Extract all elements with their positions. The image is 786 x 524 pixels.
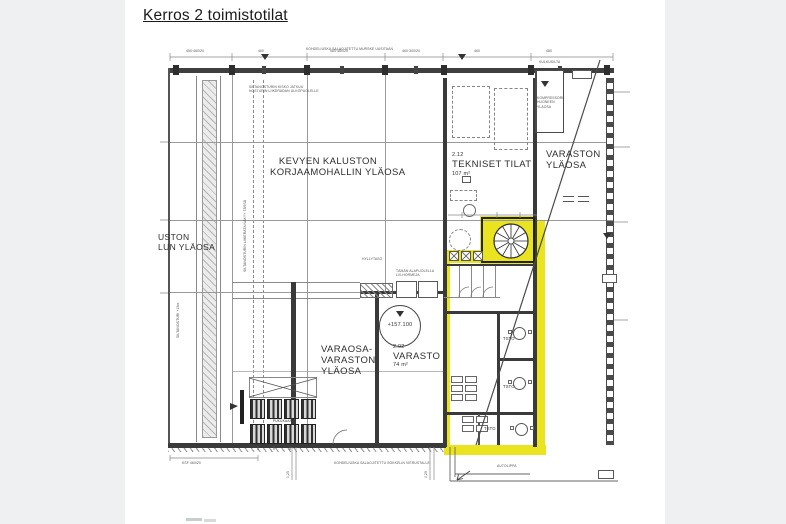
room-label-left-partial-line2: LUN YLÄOSA: [158, 242, 215, 252]
stall-divider-3: [483, 266, 484, 297]
room-label-tsto-2: TSTO: [503, 385, 515, 390]
locker-stall: [267, 424, 282, 444]
shaft-box-a: [396, 281, 417, 298]
crane-rail-line-b: [220, 76, 221, 442]
locker-stall: [267, 399, 282, 419]
locker-cell: [449, 251, 459, 261]
shelf-dash: [578, 201, 589, 202]
locker-stall: [250, 424, 265, 444]
chair: [510, 426, 514, 430]
desk: [451, 385, 463, 392]
room-label-hall: KEVYEN KALUSTON KORJAAMOHALLIN YLÄOSA: [270, 156, 386, 178]
room-label-left-partial: USTON LUN YLÄOSA: [158, 232, 215, 252]
grid-line-h1: [168, 142, 606, 143]
walkway-note: TÄMÄN ALAPUOLELLA LVI-HORMEJA: [396, 269, 434, 278]
stall-front-line: [444, 297, 500, 298]
tilt-label-1: 0,25: [286, 460, 290, 478]
room-label-tsto-1: TSTO: [503, 337, 515, 342]
equipment-dashed-circle: [449, 229, 471, 251]
dim-top-4: 460·300/20: [402, 49, 420, 53]
right-top-note: KULKUSILTA: [539, 60, 560, 64]
column-marker: [528, 65, 534, 75]
dim-top-2: 460: [258, 49, 264, 53]
room-label-varasto-upper-line2: YLÄOSA: [546, 160, 601, 171]
room-label-varaosa-line2: VARASTON: [321, 355, 376, 366]
desk: [462, 425, 474, 432]
room-label-varasto-upper: VARASTON YLÄOSA: [546, 149, 601, 171]
room-label-hall-line1: KEVYEN KALUSTON: [270, 156, 386, 167]
wall-bottom-hatch: [168, 448, 446, 452]
chair: [528, 380, 532, 384]
shelf-note: HYLLYTASO: [362, 257, 382, 261]
chair: [530, 426, 534, 430]
grid-line-h2: [168, 220, 614, 221]
stall-divider-4: [495, 266, 496, 297]
column-marker: [229, 65, 235, 75]
stall-divider-1: [459, 266, 460, 297]
wall-left-outer: [168, 68, 170, 447]
stair-room-frame: [481, 217, 535, 263]
column-marker: [441, 65, 447, 75]
room-number-varasto: 2.02: [393, 344, 405, 350]
equipment-circle: [463, 204, 476, 217]
level-marker-text: +157.100: [379, 322, 421, 328]
column-marker: [604, 65, 610, 75]
desk: [462, 416, 474, 423]
round-table: [515, 423, 528, 436]
crane-path-note-vertical: SILTANOSTURIN LIIKERATA NÄKYY TÄSSÄ: [243, 162, 247, 272]
column-marker: [173, 65, 179, 75]
wall-office-h3: [446, 412, 537, 415]
wall-right-hatched: [606, 78, 614, 445]
crane-rail-line-a: [196, 76, 197, 442]
page-title: Kerros 2 toimistotilat: [143, 7, 288, 25]
column-marker: [414, 66, 418, 74]
locker-cell: [461, 251, 471, 261]
column-marker: [304, 65, 310, 75]
room-label-kompressori-line3: YLÄOSA: [537, 105, 565, 109]
room-label-tsto-3: TSTO: [484, 427, 496, 432]
locker-block-frame: [249, 377, 317, 398]
grid-line-v3: [385, 72, 386, 293]
column-marker: [382, 65, 388, 75]
dim-top-5: 460: [474, 49, 480, 53]
roof-unit-box: [572, 70, 592, 79]
room-label-varaosa-line3: YLÄOSA: [321, 366, 376, 377]
cutoff-drawing-fragment: [204, 519, 216, 522]
equipment-dashed-2: [494, 88, 528, 150]
wall-vertical-hall-east: [443, 78, 447, 447]
grid-line-v1: [232, 72, 233, 445]
corridor-line-bottom: [232, 298, 360, 299]
walkway-hatch: [360, 283, 393, 298]
room-label-varaosa-line1: VARAOSA-: [321, 344, 376, 355]
room-label-varasto: VARASTO: [393, 351, 440, 362]
room-label-left-partial-line1: USTON: [158, 232, 215, 242]
highlight-right-strip: [537, 220, 545, 455]
dim-left-bottom: KSF 460/20: [182, 461, 201, 465]
crane-rail-note: SILTANOSTURIN KISKO JATKUU NOSTURIN LIIK…: [249, 85, 319, 94]
crane-rail-note-line2: NOSTURIN LIIKERADAN ULKOPUOLELLE: [249, 89, 319, 93]
chair: [508, 380, 512, 384]
wall-office-h2: [497, 358, 537, 361]
crane-note-vertical: SILTANOSTURI +15m: [176, 238, 180, 338]
column-marker: [340, 66, 344, 74]
wall-fixture-box: [602, 274, 617, 283]
room-label-varaosa: VARAOSA- VARASTON YLÄOSA: [321, 344, 376, 378]
dim-top-3: 480·460/20: [330, 49, 348, 53]
desk: [451, 376, 463, 383]
shaft-box-b: [418, 281, 438, 298]
room-label-kompressori: KOMPRESSORI- HUONEEN YLÄOSA: [537, 96, 565, 109]
wall-office-h1: [446, 311, 537, 314]
chair: [528, 330, 532, 334]
room-label-varasto-upper-line1: VARASTON: [546, 149, 601, 160]
wall-office-north: [444, 264, 536, 266]
desk: [465, 385, 477, 392]
walkway-note-line2: LVI-HORMEJA: [396, 273, 434, 277]
highlight-bottom-strip: [444, 445, 546, 455]
wall-stub: [240, 390, 244, 424]
desk: [476, 416, 488, 423]
equipment-dashed-3: [450, 190, 477, 201]
dim-top-6: 480: [546, 49, 552, 53]
dim-top-1: 450·460/20: [186, 49, 204, 53]
chair: [508, 330, 512, 334]
stall-divider-2: [471, 266, 472, 297]
top-note: KOHDELIUSKA SALAOJITETTU MURSKE UUSITAAN: [306, 47, 393, 51]
desk: [451, 394, 463, 401]
shelf-dash: [563, 196, 574, 197]
room-number-tekniset: 2.12: [452, 152, 464, 158]
equipment-dashed-1: [452, 86, 490, 138]
canopy-column-box: [598, 470, 614, 479]
locker-stall: [284, 399, 299, 419]
column-marker: [262, 66, 266, 74]
shelf-dash: [563, 201, 574, 202]
tilt-label-2: 0,25: [424, 460, 428, 478]
locker-cell: [473, 251, 483, 261]
room-label-hall-line2: KORJAAMOHALLIN YLÄOSA: [270, 167, 386, 178]
locker-stall: [301, 399, 316, 419]
locker-stall: [250, 399, 265, 419]
desk: [465, 376, 477, 383]
room-area-tekniset: 107 m²: [452, 171, 470, 177]
room-label-tekniset: TEKNISET TILAT: [452, 159, 532, 170]
shelf-dash: [578, 196, 589, 197]
canopy-label: AUTOLIPPA: [497, 464, 517, 468]
bottom-note: KOHDELIUSKA SALAOJITETTU SOKKELIN VIERUS…: [334, 461, 430, 465]
corridor-line-top: [232, 282, 360, 283]
room-area-varasto: 74 m²: [393, 362, 408, 368]
lockers-note: PUKUKAAPIT: [252, 419, 316, 423]
locker-stall: [284, 424, 299, 444]
wall-office-v1: [497, 311, 500, 445]
cutoff-drawing-fragment: [186, 518, 202, 521]
desk: [465, 394, 477, 401]
screenshot-root: { "title": "Kerros 2 toimistotilat", "co…: [0, 0, 786, 524]
crane-rail-hatch: [202, 80, 217, 438]
locker-stall: [301, 424, 316, 444]
